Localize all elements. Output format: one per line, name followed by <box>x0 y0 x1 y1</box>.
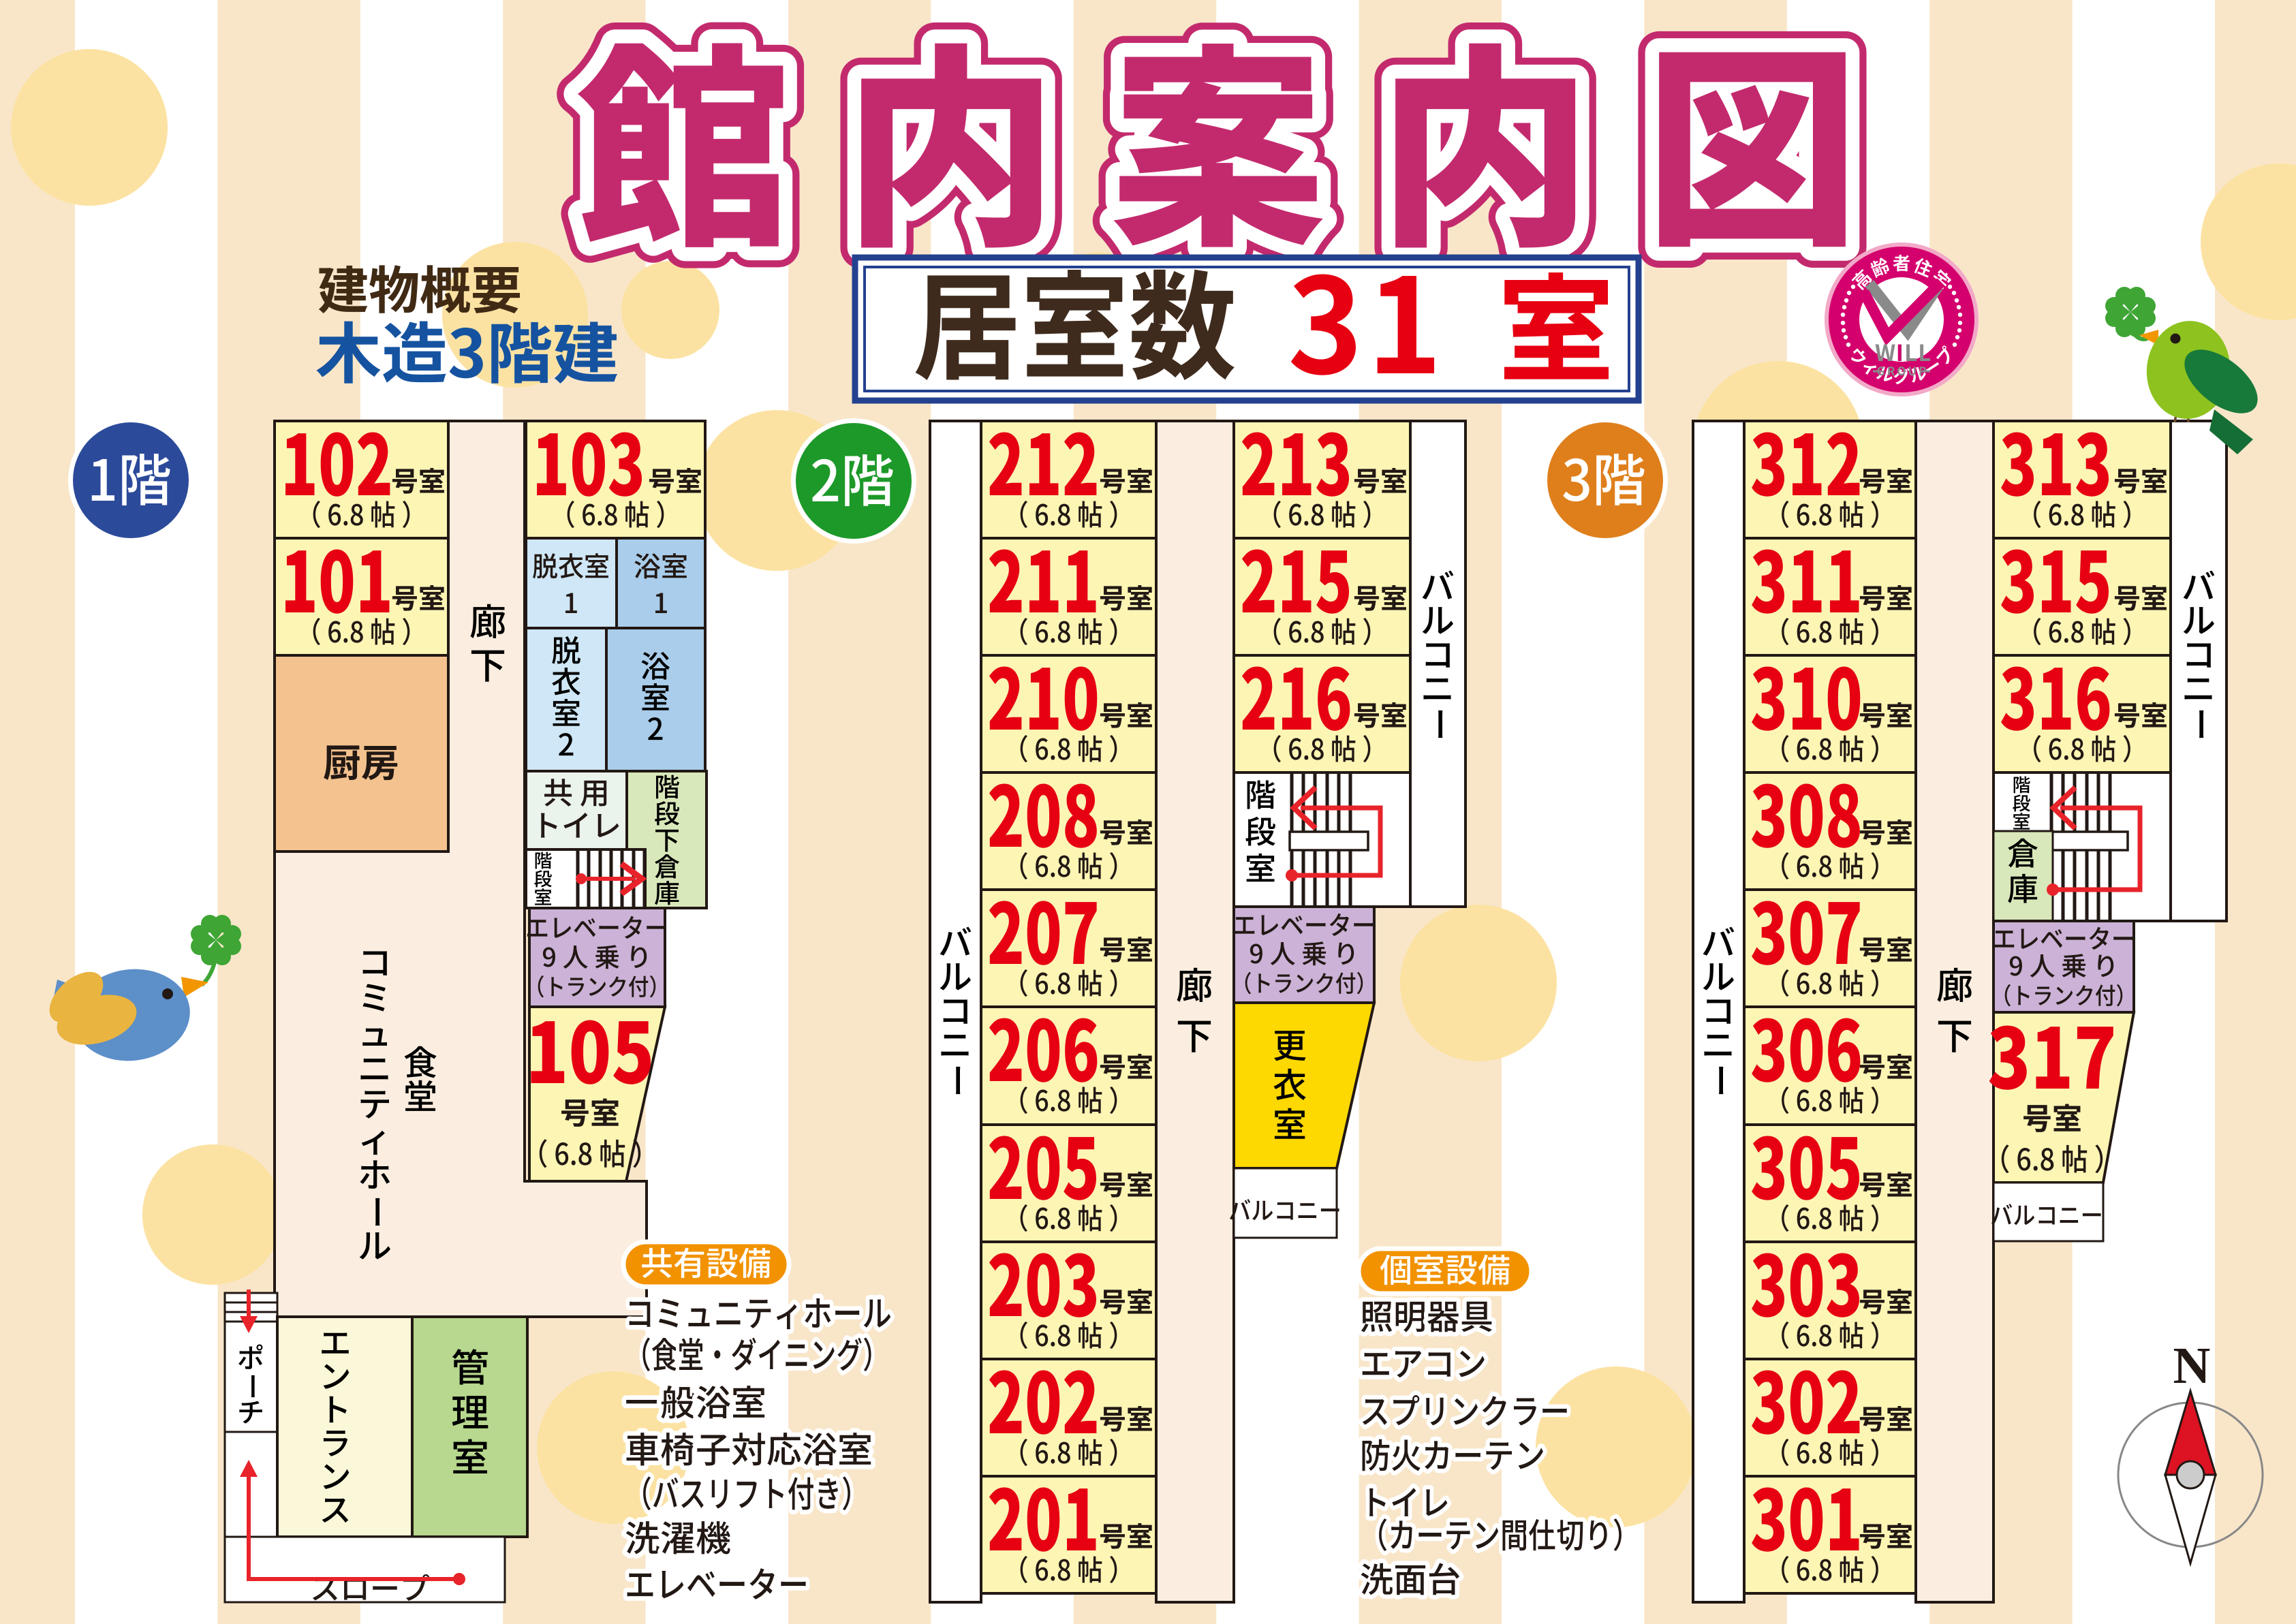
svg-text:N: N <box>2173 1337 2211 1394</box>
